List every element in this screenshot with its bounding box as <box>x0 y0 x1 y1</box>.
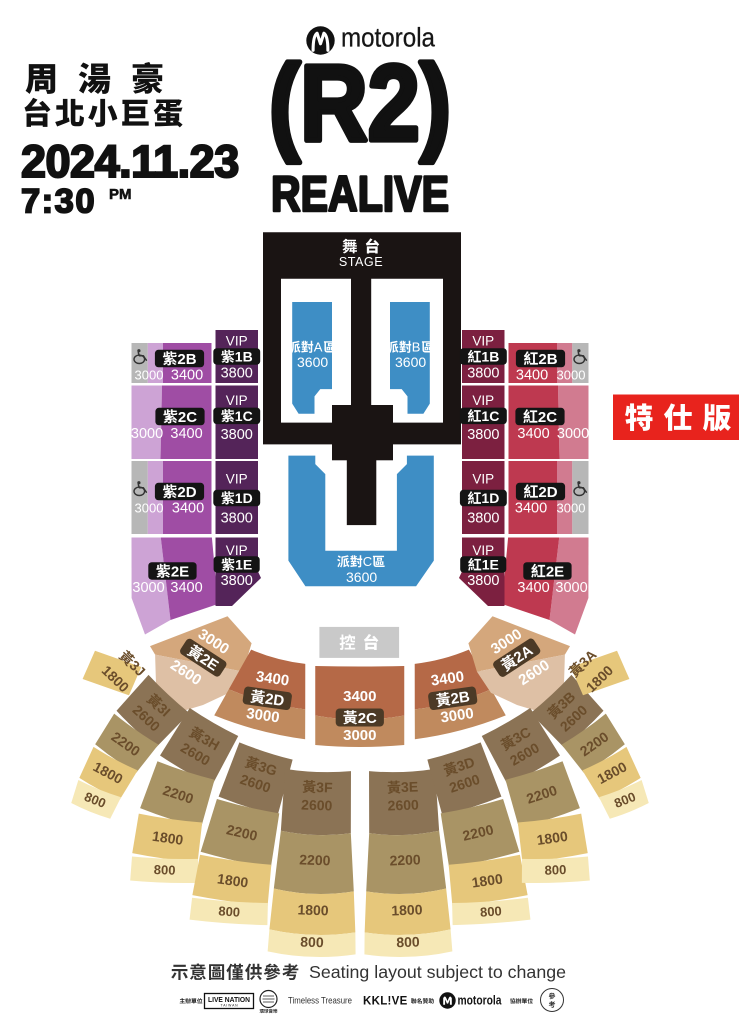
svg-text:3E: 3E <box>401 778 419 795</box>
svg-text:3400: 3400 <box>517 580 549 596</box>
svg-text:KKL!VE: KKL!VE <box>363 996 408 1008</box>
svg-text:3000: 3000 <box>132 580 164 596</box>
svg-text:3F: 3F <box>316 779 333 796</box>
svg-text:(R2): (R2) <box>269 42 451 163</box>
svg-text:3000: 3000 <box>135 368 164 383</box>
svg-text:3400: 3400 <box>516 368 548 384</box>
svg-text:3400: 3400 <box>517 426 549 442</box>
svg-text:3000: 3000 <box>557 501 586 516</box>
svg-text:3600: 3600 <box>297 354 328 370</box>
svg-text:VIP: VIP <box>226 333 248 348</box>
svg-text:VIP: VIP <box>226 471 248 486</box>
svg-text:1B: 1B <box>235 349 253 365</box>
svg-text:1C: 1C <box>481 408 499 424</box>
svg-text:3600: 3600 <box>346 569 377 585</box>
svg-text:VIP: VIP <box>472 333 494 348</box>
svg-text:2B: 2B <box>538 351 557 368</box>
svg-text:800: 800 <box>480 903 503 919</box>
svg-text:2D: 2D <box>538 484 557 501</box>
svg-text:3000: 3000 <box>135 501 164 516</box>
svg-text:VIP: VIP <box>226 393 248 408</box>
svg-text:Seating layout subject to chan: Seating layout subject to change <box>309 962 566 982</box>
svg-text:B: B <box>412 340 421 355</box>
svg-text:A: A <box>314 340 323 355</box>
svg-text:3400: 3400 <box>172 501 204 517</box>
svg-text:2D: 2D <box>177 484 196 501</box>
svg-text:1800: 1800 <box>297 901 329 918</box>
svg-text:STAGE: STAGE <box>339 255 383 269</box>
svg-text:2C: 2C <box>538 409 557 426</box>
svg-text:3000: 3000 <box>131 426 163 442</box>
svg-text:2B: 2B <box>177 351 196 368</box>
svg-text:2024.11.23: 2024.11.23 <box>21 136 239 187</box>
svg-text:800: 800 <box>396 933 420 950</box>
svg-text:2200: 2200 <box>299 851 331 868</box>
svg-text:3000: 3000 <box>343 727 376 744</box>
svg-text:3800: 3800 <box>221 366 253 382</box>
svg-text:3400: 3400 <box>515 501 547 517</box>
svg-text:3800: 3800 <box>467 366 499 382</box>
svg-text:1800: 1800 <box>391 901 423 918</box>
svg-text:1B: 1B <box>481 349 499 365</box>
svg-text:800: 800 <box>544 862 566 878</box>
svg-text:2E: 2E <box>546 563 564 580</box>
svg-text:3000: 3000 <box>555 580 587 596</box>
svg-text:3000: 3000 <box>557 426 589 442</box>
svg-text:2C: 2C <box>178 409 197 426</box>
svg-text:1D: 1D <box>481 490 499 506</box>
svg-text:2600: 2600 <box>301 796 333 813</box>
svg-text:3400: 3400 <box>170 580 202 596</box>
svg-text:1C: 1C <box>235 408 253 424</box>
svg-text:PM: PM <box>109 186 132 203</box>
svg-text:3000: 3000 <box>557 368 586 383</box>
svg-text:2C: 2C <box>358 710 377 727</box>
svg-text:800: 800 <box>154 862 176 878</box>
svg-text:3800: 3800 <box>467 511 499 527</box>
svg-text:1E: 1E <box>235 557 252 573</box>
svg-text:800: 800 <box>300 933 324 950</box>
svg-text:REALIVE: REALIVE <box>271 166 449 222</box>
svg-text:3800: 3800 <box>221 573 253 589</box>
svg-text:3800: 3800 <box>221 511 253 527</box>
svg-text:motorola: motorola <box>458 994 503 1008</box>
svg-text:3400: 3400 <box>171 368 203 384</box>
svg-text:2600: 2600 <box>387 796 419 813</box>
svg-text:VIP: VIP <box>472 393 494 408</box>
svg-text:C: C <box>363 554 372 569</box>
svg-text:1D: 1D <box>235 490 253 506</box>
svg-text:3400: 3400 <box>343 688 376 705</box>
svg-text:3800: 3800 <box>221 427 253 443</box>
svg-text:VIP: VIP <box>472 471 494 486</box>
svg-text:1E: 1E <box>482 557 499 573</box>
svg-text:2200: 2200 <box>389 851 421 868</box>
svg-text:3800: 3800 <box>467 427 499 443</box>
svg-text:800: 800 <box>218 903 241 919</box>
svg-text:Timeless Treasure: Timeless Treasure <box>288 996 352 1007</box>
svg-text:3800: 3800 <box>467 573 499 589</box>
svg-text:2E: 2E <box>171 563 189 580</box>
svg-text:7:30: 7:30 <box>21 183 96 221</box>
svg-text:3400: 3400 <box>170 426 202 442</box>
svg-text:T A I W A N: T A I W A N <box>220 1003 238 1007</box>
svg-text:3600: 3600 <box>395 354 426 370</box>
